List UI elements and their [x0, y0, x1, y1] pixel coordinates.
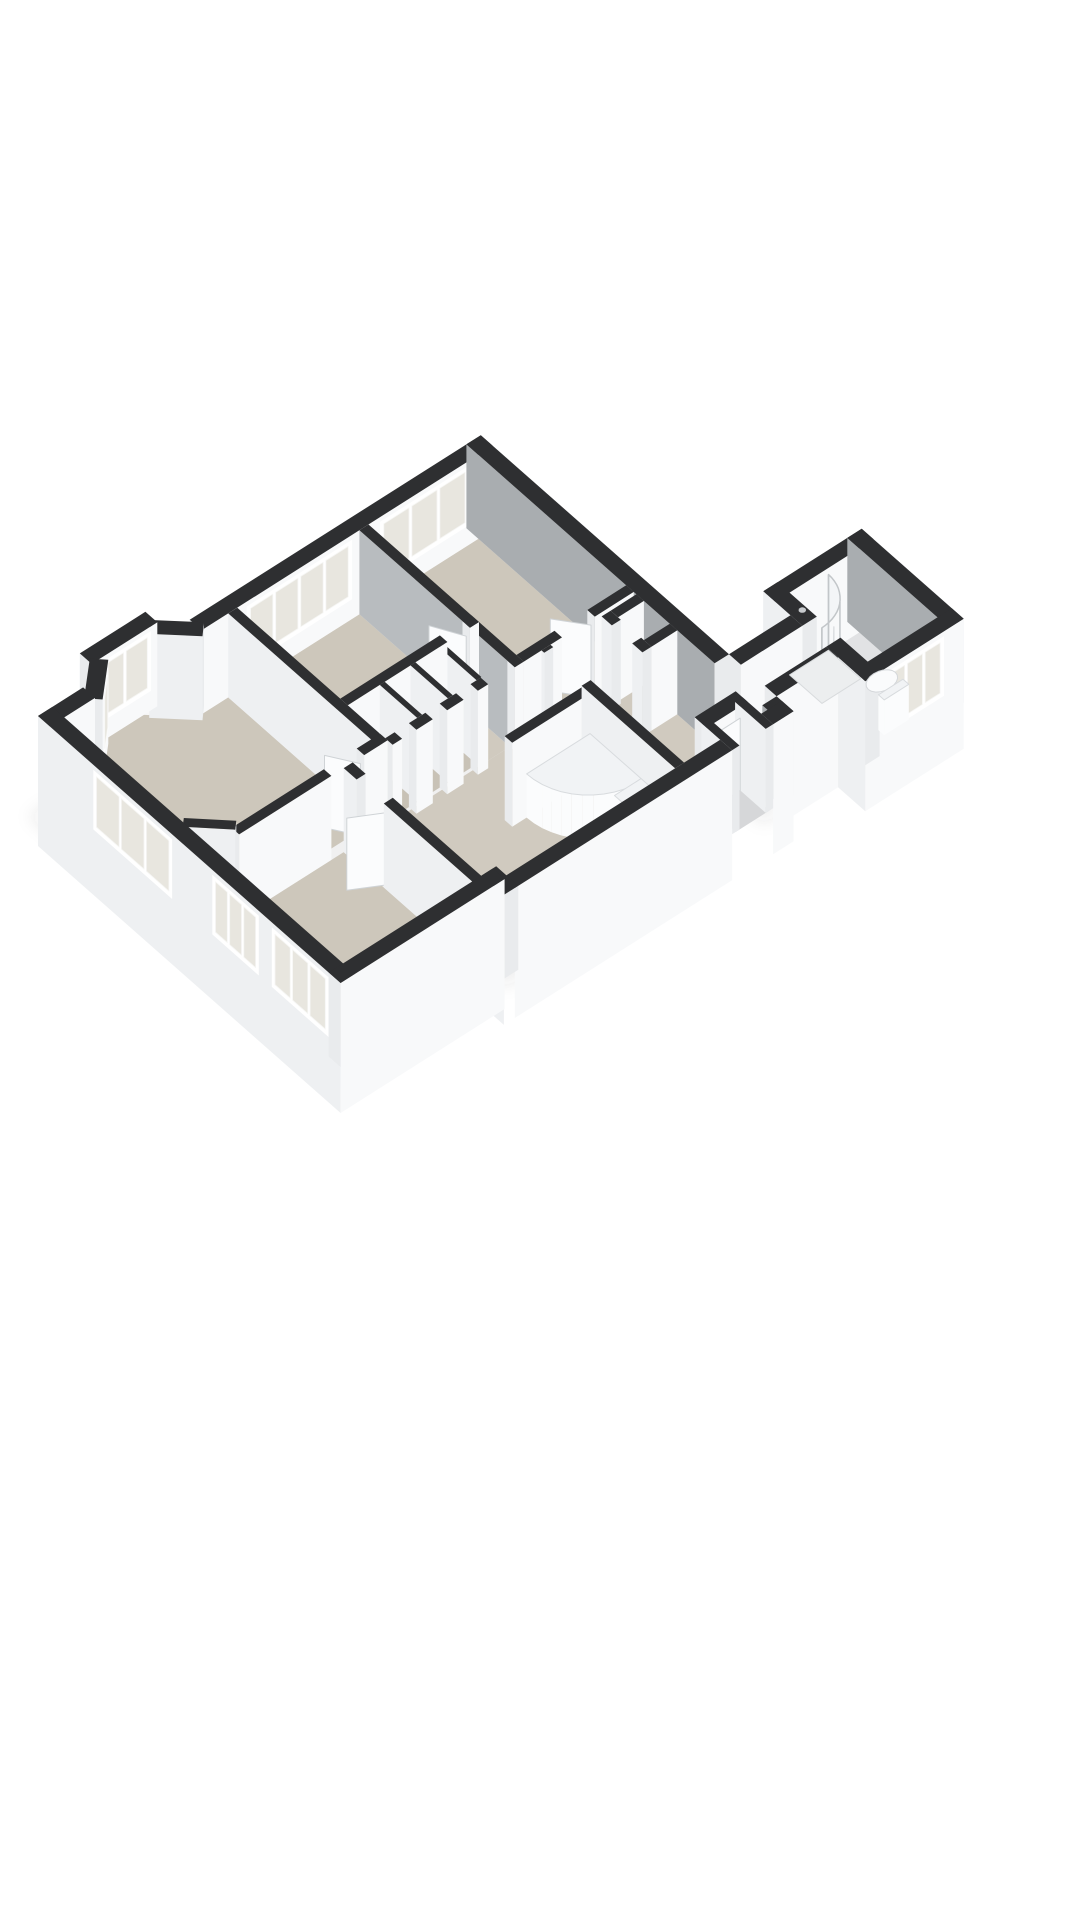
closet-front-wall: [409, 713, 433, 814]
building-scene: [38, 435, 964, 1113]
closet-front-wall: [471, 678, 489, 775]
bedroom3-door: [347, 812, 389, 890]
floorplan-page: [0, 0, 1080, 1920]
floorplan-3d-render: [0, 0, 1080, 1920]
closet-front-wall: [440, 693, 464, 794]
bay-side-north: [149, 620, 204, 720]
